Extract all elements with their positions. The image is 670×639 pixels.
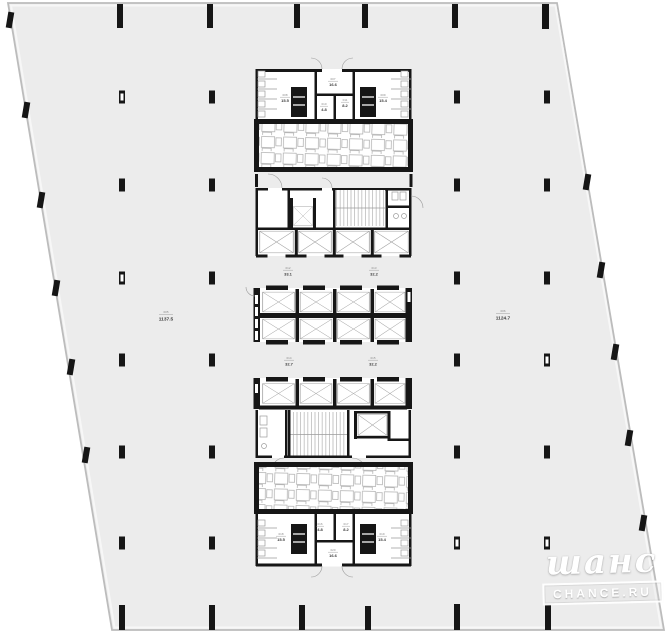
room-code: 019 [379,532,384,536]
room-area: 15.4 [378,537,387,542]
room-area: 16.6 [329,82,338,87]
room-area: 32.2 [369,362,378,367]
room-code: 012 [285,266,290,270]
room-code: 011 [343,98,348,102]
bottom-service-room [257,465,411,512]
room-code: 014 [286,356,291,360]
room-area: 4.8 [317,527,323,532]
room-area: 16.6 [329,553,338,558]
room-code: 018 [278,532,283,536]
top-service-room [257,122,411,170]
central-lift-bank [246,286,412,345]
stairwell-lower [288,410,350,457]
room-code: 013 [371,266,376,270]
room-code: 008 [282,93,287,97]
watermark: шанс CHANCE.RU [537,543,666,605]
zone-code: 006 [500,309,505,313]
building-core [246,58,423,577]
watermark-caption: CHANCE.RU [542,580,664,605]
room-area: 8.2 [343,527,349,532]
room-code: 007 [330,77,335,81]
stairwell-upper [333,188,388,228]
zone-area: 1137.5 [159,317,174,323]
zone-code: 005 [163,310,168,314]
upper-lift-bank [256,228,412,258]
floor-plan-canvas: 008 15.5 007 16.6 009 15.4 010 4.8 011 8… [0,0,670,639]
room-code: 016 [317,522,322,526]
room-area: 15.4 [379,98,388,103]
room-code: 015 [370,356,375,360]
room-code: 009 [380,93,385,97]
room-area: 15.5 [277,537,286,542]
room-area: 15.5 [281,98,290,103]
watermark-script-text: шанс [537,543,666,582]
room-area: 4.8 [321,107,327,112]
lower-vestibule-shaft [354,411,391,439]
room-area: 8.2 [342,103,348,108]
room-area: 33.1 [284,272,293,277]
room-code: 020 [330,548,335,552]
room-code: 017 [343,522,348,526]
room-code: 010 [321,102,326,106]
zone-area: 1124.7 [496,316,511,322]
room-area: 32.2 [370,272,379,277]
room-area: 32.7 [285,362,294,367]
